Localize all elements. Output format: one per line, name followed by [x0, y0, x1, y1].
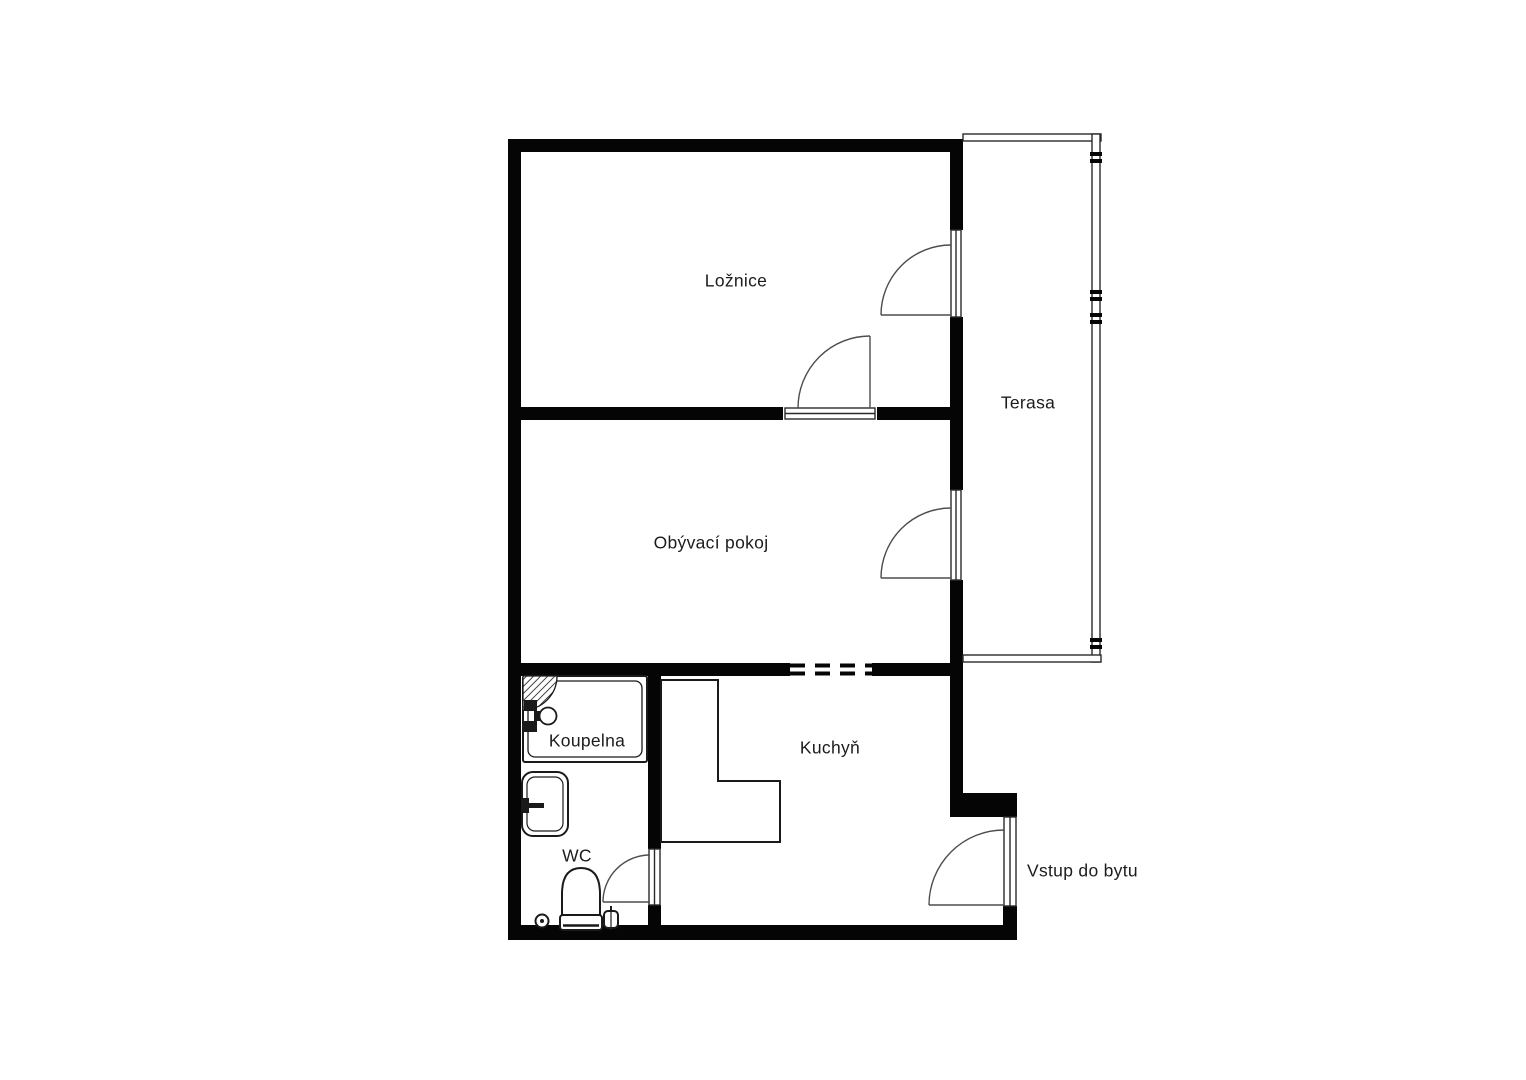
toilet	[560, 868, 602, 930]
railing-top	[963, 134, 1101, 141]
door-swing-arc	[881, 508, 951, 578]
wall-segment	[508, 407, 783, 420]
wall-segment	[950, 139, 963, 230]
wall-segment	[648, 663, 661, 849]
entrance-label: Vstup do bytu	[1027, 861, 1138, 882]
floor-drain	[536, 915, 549, 928]
room-label-terasa: Terasa	[1001, 393, 1055, 414]
wc-door-frame	[649, 849, 660, 905]
wall-segment	[950, 580, 963, 817]
livingroom-terrace-door-frame	[951, 490, 961, 580]
room-label-koupelna: Koupelna	[549, 731, 625, 752]
wall-segment	[950, 317, 963, 490]
wall-segment	[648, 905, 661, 940]
entrance-door-frame	[1004, 817, 1016, 906]
door-swing-arc	[929, 830, 1004, 905]
room-label-obyvaci-pokoj: Obývací pokoj	[654, 533, 769, 554]
door-swing-arc	[603, 855, 650, 902]
bedroom-terrace-door	[881, 245, 951, 315]
room-label-loznice: Ložnice	[705, 271, 767, 292]
wall-segment	[872, 663, 963, 676]
bedroom-door-frame	[785, 408, 875, 419]
wall-segment	[950, 793, 1017, 817]
kitchen-counter	[661, 680, 780, 842]
bedroom-terrace-door-frame	[951, 230, 961, 317]
wall-segment	[508, 139, 963, 152]
passage-dashed-opening	[790, 666, 872, 674]
wall-segment	[508, 139, 521, 940]
room-label-kuchyn: Kuchyň	[800, 738, 860, 759]
floorplan-canvas: Ložnice Terasa Obývací pokoj Koupelna Ku…	[0, 0, 1526, 1080]
railing-right	[1092, 134, 1100, 662]
door-swing-arc	[881, 245, 951, 315]
livingroom-terrace-door	[881, 508, 951, 578]
wall-segment	[877, 407, 963, 420]
wc-door	[603, 855, 650, 902]
washbasin	[522, 772, 568, 836]
door-swing-arc	[798, 336, 870, 408]
room-label-wc: WC	[562, 846, 592, 867]
entrance-door	[929, 830, 1004, 905]
bedroom-door	[798, 336, 870, 408]
wall-segment	[1003, 906, 1017, 940]
toilet-accessory	[604, 906, 618, 930]
railing-bottom	[963, 655, 1101, 662]
